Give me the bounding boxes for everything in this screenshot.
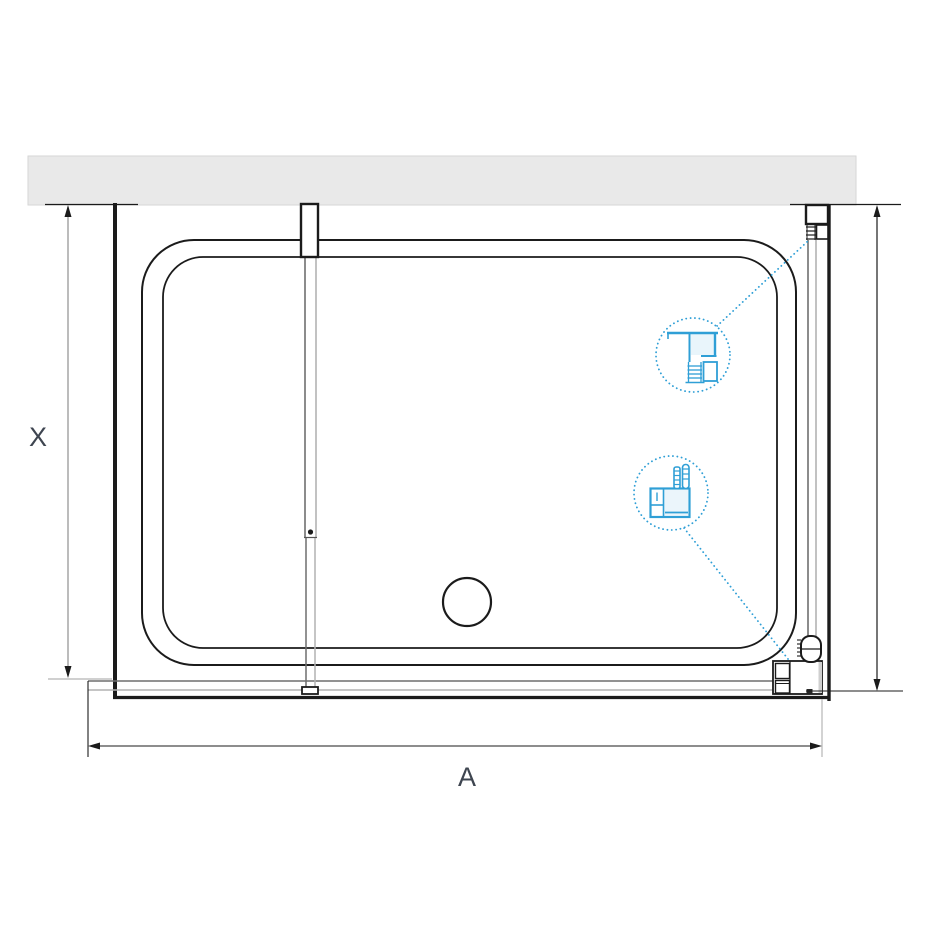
callout-leader-bottom [684, 528, 788, 659]
dimension-depth-label: X [29, 422, 47, 452]
dimension-width-label: A [458, 762, 476, 792]
center-panel-foot [302, 687, 318, 694]
arrow-down-icon [874, 679, 881, 691]
arrow-down-icon [65, 666, 72, 678]
dimension-depth [45, 205, 138, 680]
wall-profile-detail-icon [656, 318, 730, 392]
arrow-right-icon [810, 743, 822, 750]
center-panel-glass [304, 257, 317, 687]
floor-support-detail-icon [634, 456, 708, 530]
diagram-canvas: X A [0, 0, 926, 926]
arrow-up-icon [65, 205, 72, 217]
dimension-width [88, 681, 822, 757]
arrow-left-icon [88, 743, 100, 750]
center-panel-wall-profile [301, 204, 318, 257]
gasket-spring-icon [806, 225, 816, 240]
arrow-up-icon [874, 205, 881, 217]
right-panel-glass [808, 240, 816, 637]
center-panel-connector-dot [308, 529, 313, 534]
front-panel-glass [88, 681, 773, 690]
wall [28, 156, 856, 205]
right-panel-floor-support [773, 636, 822, 694]
right-panel-wall-profile [806, 205, 828, 240]
drain [443, 578, 491, 626]
shower-topview-diagram: X A [0, 0, 926, 926]
dimension-right [790, 205, 903, 692]
